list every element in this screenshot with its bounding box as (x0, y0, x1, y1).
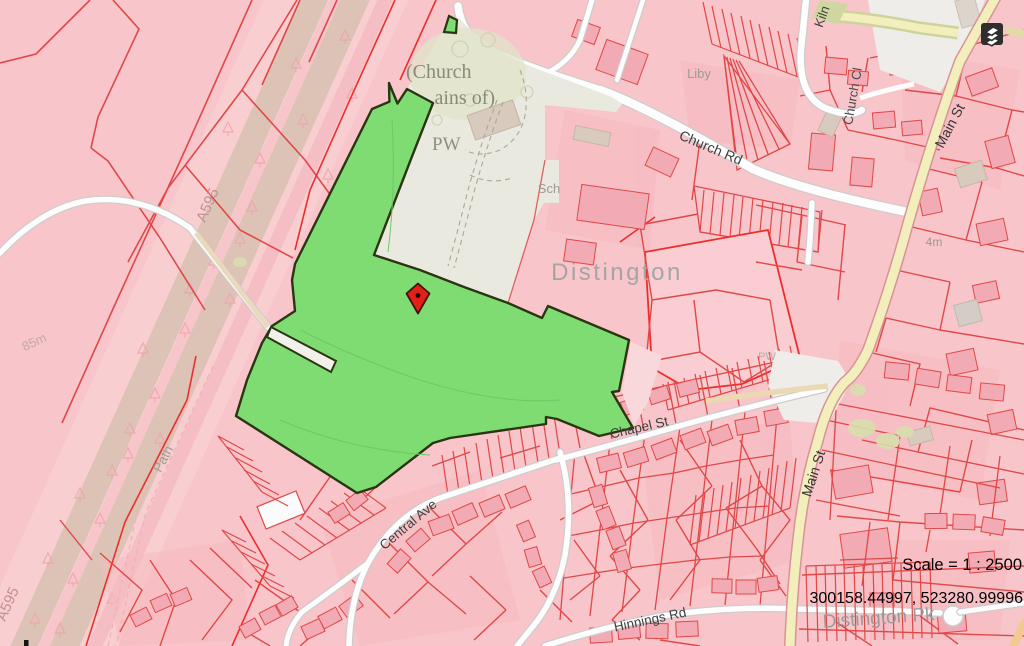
svg-text:(Church: (Church (406, 61, 472, 83)
svg-text:Scale = 1 : 2500: Scale = 1 : 2500 (902, 556, 1022, 574)
svg-text:PW: PW (758, 351, 776, 363)
svg-text:PW: PW (432, 134, 461, 155)
svg-text:4m: 4m (926, 235, 943, 249)
svg-text:300158.44997, 523280.99996: 300158.44997, 523280.99996 (809, 590, 1023, 607)
svg-text:Sch: Sch (538, 181, 560, 196)
svg-text:Liby: Liby (687, 66, 711, 81)
svg-text:ains of): ains of) (435, 87, 496, 109)
svg-text:Distington: Distington (551, 259, 683, 286)
